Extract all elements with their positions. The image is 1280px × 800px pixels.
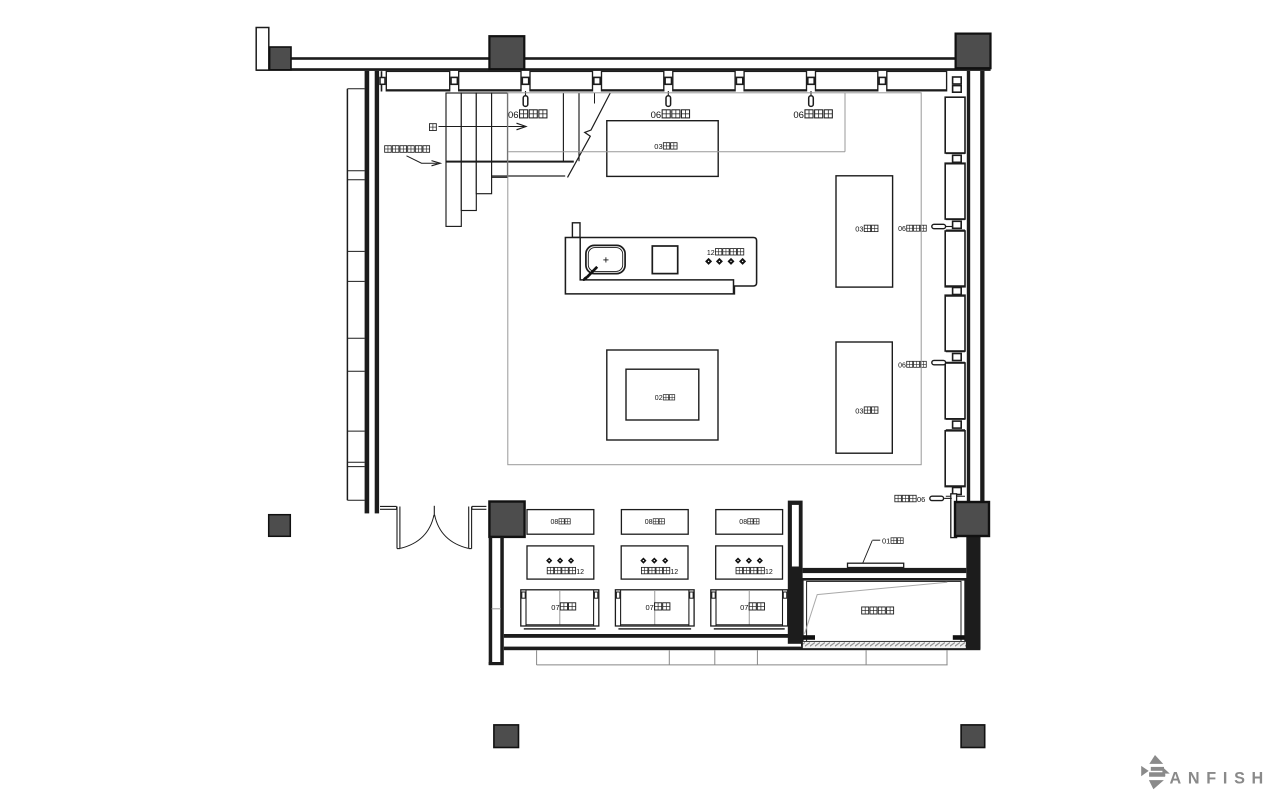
- svg-text:03: 03: [855, 225, 863, 234]
- svg-text:12: 12: [765, 569, 773, 576]
- svg-text:07: 07: [740, 603, 748, 612]
- svg-text:03: 03: [654, 142, 662, 151]
- svg-text:ANFISH: ANFISH: [1170, 770, 1270, 788]
- svg-text:07: 07: [551, 603, 559, 612]
- svg-text:08: 08: [551, 519, 559, 526]
- svg-text:06: 06: [898, 362, 906, 369]
- svg-text:12: 12: [707, 250, 715, 257]
- svg-text:06: 06: [508, 110, 519, 121]
- svg-text:08: 08: [739, 519, 747, 526]
- svg-text:01: 01: [882, 537, 890, 546]
- svg-text:12: 12: [576, 569, 584, 576]
- svg-text:02: 02: [655, 395, 663, 402]
- svg-text:07: 07: [646, 603, 654, 612]
- svg-text:08: 08: [645, 519, 653, 526]
- svg-text:12: 12: [670, 569, 678, 576]
- svg-text:06: 06: [917, 495, 925, 504]
- svg-text:06: 06: [793, 110, 804, 121]
- svg-text:03: 03: [855, 406, 863, 415]
- svg-text:06: 06: [898, 226, 906, 233]
- svg-text:06: 06: [651, 110, 662, 121]
